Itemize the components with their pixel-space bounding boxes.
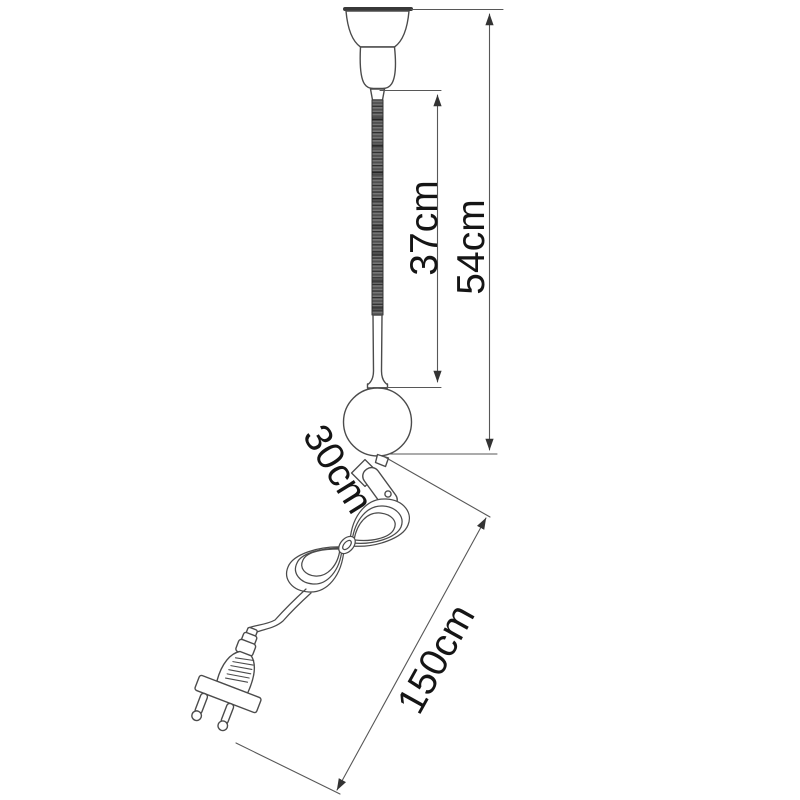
lamp-dimension-diagram: 37cm 54cm 30cm 150cm	[0, 0, 800, 800]
dim-label-cable: 150cm	[389, 598, 483, 721]
line-art-layer	[184, 9, 503, 794]
dim-label-flex-tube: 37cm	[403, 180, 446, 275]
ceiling-cup	[345, 9, 411, 100]
ball-shade	[344, 388, 412, 456]
cable-lower-strand-2	[257, 593, 311, 632]
diagram-canvas: 37cm 54cm 30cm 150cm	[0, 0, 800, 800]
dim-label-total-height: 54cm	[450, 199, 493, 294]
flexible-tube	[368, 100, 388, 388]
grip-hole	[385, 491, 391, 497]
cable-bow	[248, 499, 409, 632]
ball-neck	[376, 455, 389, 467]
lower-stem	[368, 315, 388, 388]
cup-bell	[346, 11, 409, 47]
dim150-ext-bottom	[236, 743, 340, 794]
flex-tube-shading	[372, 100, 383, 315]
cable-lower-strand	[248, 589, 306, 628]
cup-body	[360, 47, 395, 89]
power-plug	[184, 617, 284, 740]
